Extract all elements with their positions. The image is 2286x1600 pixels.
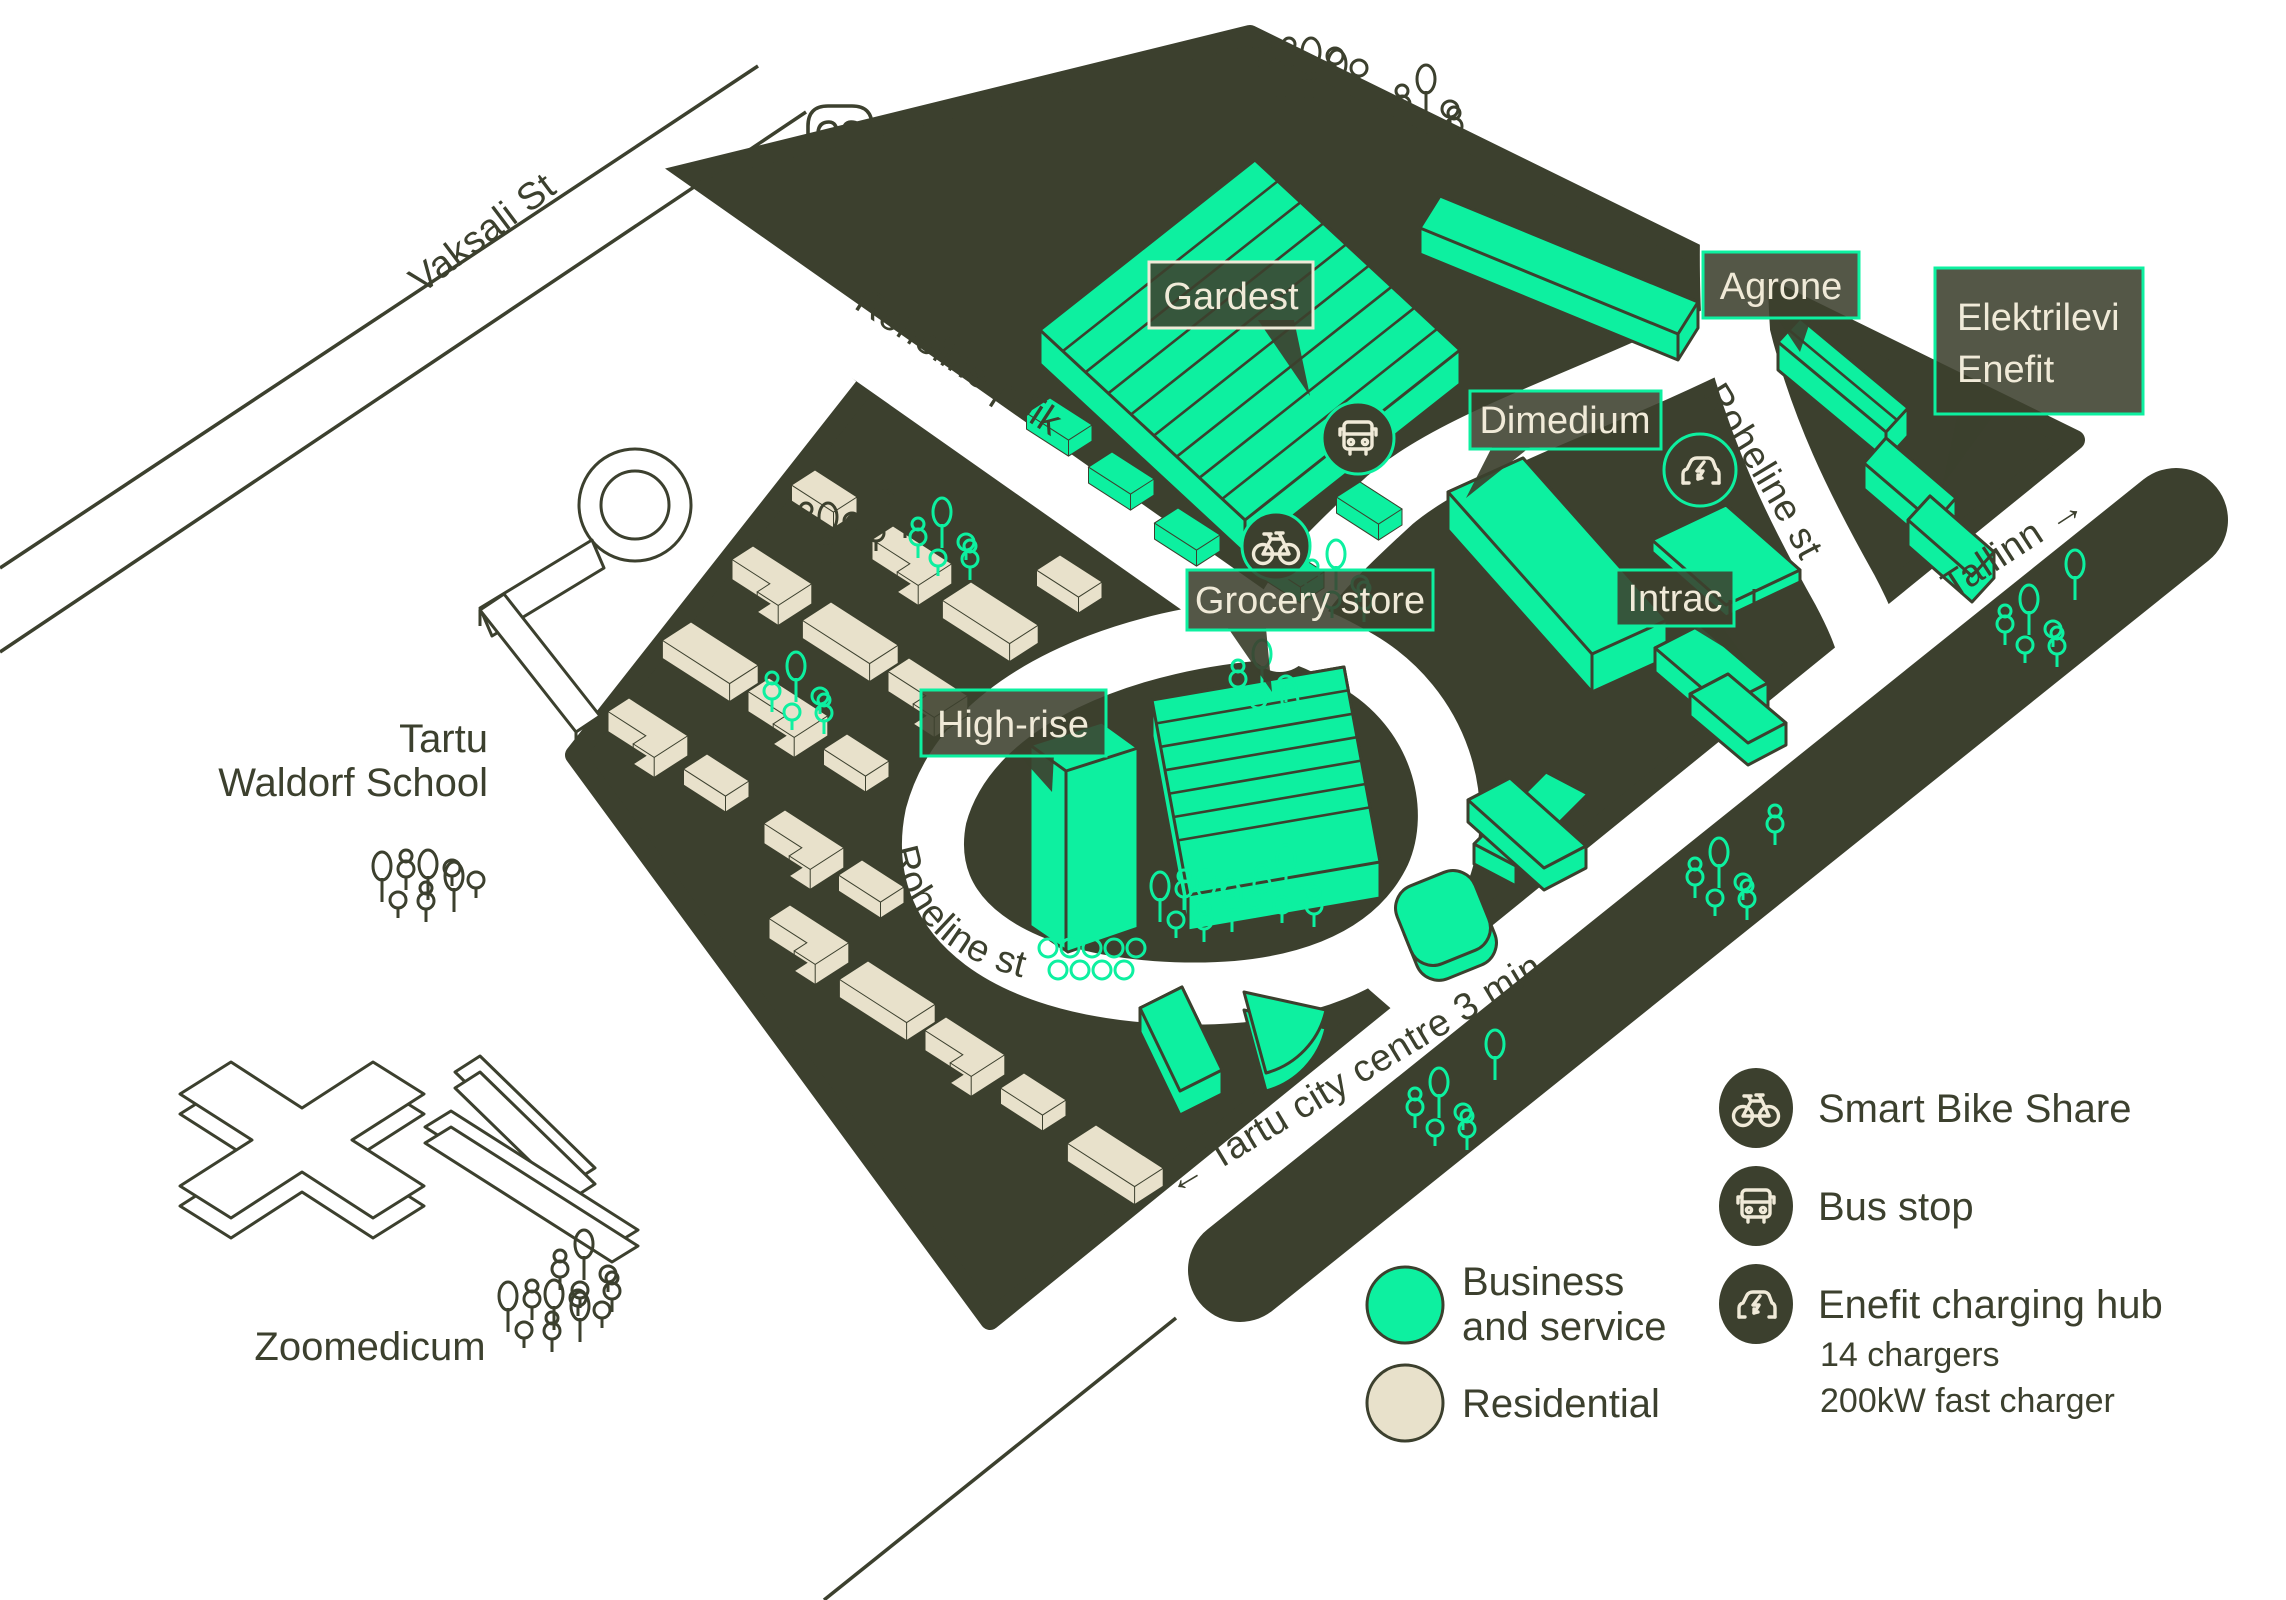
label-waldorf-2: Waldorf School	[218, 761, 488, 805]
railway	[0, 66, 806, 652]
label-waldorf-1: Tartu	[399, 717, 488, 761]
svg-text:Grocery store: Grocery store	[1195, 580, 1425, 622]
svg-text:Gardest: Gardest	[1163, 276, 1299, 318]
legend-business-2: and service	[1462, 1305, 1667, 1349]
bus-stop-map-icon	[1322, 402, 1394, 474]
svg-text:Agrone: Agrone	[1720, 266, 1843, 308]
tartu-site-map: Vaksali St Roheline põik Roheline st Roh…	[0, 0, 2286, 1600]
street-vaksali: Vaksali St	[402, 165, 564, 302]
zoomedicum-building	[180, 1056, 638, 1262]
svg-text:Intrac: Intrac	[1627, 578, 1722, 620]
svg-text:Dimedium: Dimedium	[1479, 400, 1650, 442]
svg-text:High-rise: High-rise	[937, 704, 1089, 746]
legend-residential: Residential	[1462, 1382, 1660, 1426]
legend-business-1: Business	[1462, 1260, 1624, 1304]
legend-ev-label: Enefit charging hub	[1818, 1283, 2163, 1327]
legend-bus-icon	[1719, 1166, 1793, 1246]
legend-business-swatch	[1367, 1267, 1443, 1343]
legend-bus-label: Bus stop	[1818, 1185, 1974, 1229]
legend-ev-sub1: 14 chargers	[1820, 1336, 2000, 1374]
legend-bike-label: Smart Bike Share	[1818, 1087, 2131, 1131]
svg-text:Enefit: Enefit	[1957, 349, 2055, 391]
legend-bike-icon	[1719, 1068, 1793, 1148]
map-canvas: Vaksali St Roheline põik Roheline st Roh…	[0, 0, 2286, 1600]
svg-text:Elektrilevi: Elektrilevi	[1957, 297, 2120, 339]
legend-residential-swatch	[1367, 1365, 1443, 1441]
legend-ev-sub2: 200kW fast charger	[1820, 1382, 2115, 1420]
legend-ev-icon	[1719, 1264, 1793, 1344]
label-zoomedicum: Zoomedicum	[254, 1325, 485, 1369]
tree-cluster-zoomedicum-n	[373, 850, 484, 922]
area-labels: Tartu Waldorf School Zoomedicum	[218, 717, 488, 1369]
